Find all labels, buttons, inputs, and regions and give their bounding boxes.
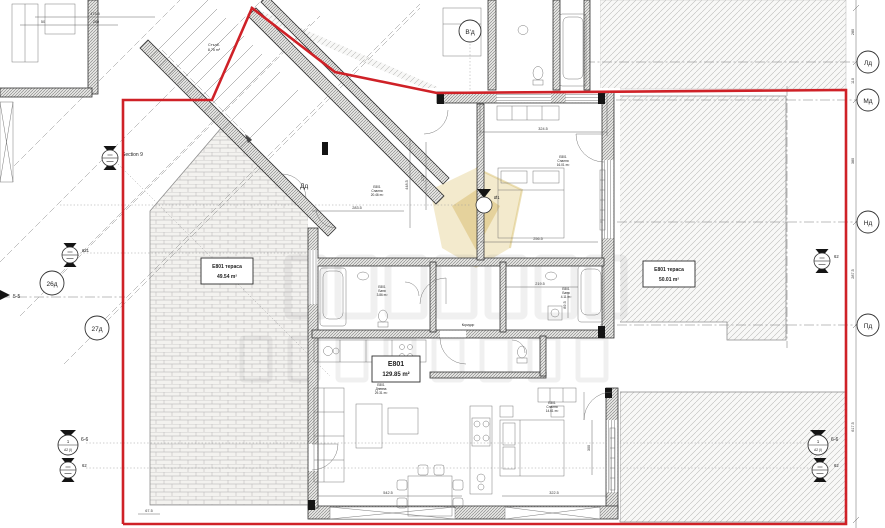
dim-219: 219.5 <box>535 282 545 286</box>
svg-text:8.75 m²: 8.75 m² <box>208 48 221 52</box>
terrace-right-label: E801 тераса 50.01 m² <box>643 261 695 287</box>
dim-324: 324.5 <box>538 127 548 131</box>
axis-ld: Лд <box>857 51 879 73</box>
axis-md: Мд <box>857 89 879 111</box>
dim-283: 283.5 <box>352 206 362 210</box>
elev-62-br: 62 <box>834 463 839 468</box>
dim-617: 617.5 <box>851 422 855 432</box>
svg-text:Пд: Пд <box>864 323 873 330</box>
svg-text:14.61 m²: 14.61 m² <box>546 409 559 413</box>
dim-50: 50 <box>41 20 45 24</box>
axis-vd: В'д <box>459 20 481 42</box>
dim-300: 300 <box>587 445 591 451</box>
terrace-left-label: E801 тераса 49.54 m² <box>201 258 253 284</box>
svg-text:A2 (I): A2 (I) <box>814 448 822 452</box>
terrace-right-area: 50.01 m² <box>659 277 679 283</box>
stairs-label: Стълб. 8.75 m² <box>208 43 221 52</box>
svg-text:6-6: 6-6 <box>81 437 88 443</box>
elev-62-bl: 62 <box>82 463 87 468</box>
svg-text:3.86 m²: 3.86 m² <box>377 293 388 297</box>
svg-text:4.11 m²: 4.11 m² <box>561 295 572 299</box>
svg-text:Ø1: Ø1 <box>494 195 500 200</box>
dim-542: 542.5 <box>383 491 393 495</box>
floor-plan-drawing: 324.5 256.5 283.5 448.5 172 219.5 89.5 5… <box>0 0 885 528</box>
elev-62-right: 62 <box>834 254 839 259</box>
dim-260: 260 <box>93 20 99 24</box>
dim-89: 89.5 <box>563 301 567 308</box>
floor-plan-sheet: 324.5 256.5 283.5 448.5 172 219.5 89.5 5… <box>0 0 885 528</box>
svg-text:Коридор: Коридор <box>462 323 475 327</box>
dim-380: 380 <box>851 158 855 164</box>
dim-448: 448.5 <box>405 180 409 190</box>
dim-287: 287.5 <box>851 269 855 279</box>
svg-text:Мд: Мд <box>863 98 872 105</box>
axis-nd: Нд <box>857 211 879 233</box>
svg-text:Нд: Нд <box>864 220 873 227</box>
axis-27d: 27д <box>85 316 109 340</box>
terrace-right-region <box>612 96 786 340</box>
apartment-id: E801 <box>388 361 404 368</box>
dim-110: 110 <box>851 78 855 84</box>
axis-dd: Дд <box>300 183 308 190</box>
section9-label: Section 9 <box>122 152 143 158</box>
svg-text:6-6: 6-6 <box>831 437 838 443</box>
corridor-label: Коридор <box>462 323 475 327</box>
terrace-left-name: E801 тераса <box>212 264 242 270</box>
apartment-label: E801 129.85 m² <box>372 356 420 382</box>
section-marker-55: 5-5 <box>0 290 20 300</box>
elev-621: 621 <box>82 248 90 253</box>
dim-67: 67.5 <box>145 509 152 513</box>
dim-256: 256.5 <box>533 237 543 241</box>
svg-text:Лд: Лд <box>864 60 872 67</box>
svg-text:5-5: 5-5 <box>13 294 20 300</box>
dim-322: 322.5 <box>549 491 559 495</box>
svg-text:16.01 m²: 16.01 m² <box>557 163 570 167</box>
dim-473: 473.5 <box>90 12 100 16</box>
dim-172: 172 <box>421 175 425 181</box>
terrace-left-area: 49.54 m² <box>217 274 237 280</box>
svg-text:Стълб.: Стълб. <box>208 43 220 47</box>
dim-280: 280 <box>851 29 855 35</box>
axis-26d: 26д <box>40 271 64 295</box>
axis-pd: Пд <box>857 314 879 336</box>
roof-hatch-top-right <box>600 0 846 89</box>
svg-text:26д: 26д <box>46 281 57 288</box>
apartment-area: 129.85 m² <box>382 371 409 378</box>
section-marker-66-left: 1 A2 (I) 6-6 <box>58 430 88 455</box>
terrace-bottom-right-region <box>620 392 846 522</box>
svg-text:29.31 m²: 29.31 m² <box>375 391 388 395</box>
svg-text:A2 (I): A2 (I) <box>64 448 72 452</box>
terrace-right-name: E801 тераса <box>654 267 684 273</box>
svg-text:27д: 27д <box>91 326 102 333</box>
svg-text:20.46 m²: 20.46 m² <box>371 193 384 197</box>
svg-text:В'д: В'д <box>465 29 475 36</box>
